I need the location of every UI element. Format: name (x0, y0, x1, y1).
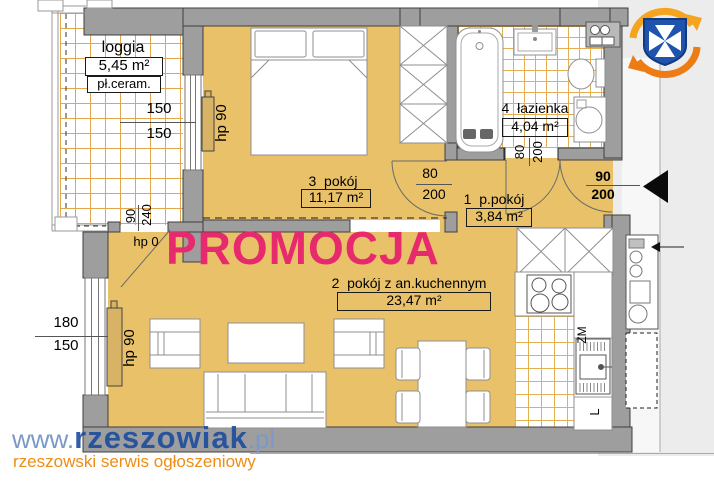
bathroom-label: 4 łazienka (492, 101, 578, 116)
loggia-label: loggia (85, 40, 161, 57)
site-logo-icon (628, 11, 702, 74)
watermark-tld: .pl (248, 424, 275, 454)
hall-area: 3,84 m² (466, 208, 532, 227)
room3-wardrobe (400, 26, 447, 143)
watermark-url: www.rzeszowiak.pl (12, 420, 275, 456)
room2-area: 23,47 m² (337, 292, 491, 311)
dim-entrance-door-height: 200 (585, 187, 621, 202)
dim-entrance-door-width: 90 (588, 169, 618, 184)
dim-balcony-door-hp: hp 0 (126, 235, 166, 249)
dim-loggia-window-bottom: 150 (141, 126, 177, 142)
dim-loggia-window-top: 150 (141, 101, 177, 117)
dim-room2-window-top: 180 (48, 315, 84, 331)
watermark-tagline: rzeszowski serwis ogłoszeniowy (13, 452, 256, 472)
coffee-table (228, 323, 304, 363)
top-edge-block-2 (87, 0, 112, 8)
watermark-prefix: www. (12, 424, 74, 454)
room3-area: 11,17 m² (301, 189, 371, 208)
toilet (568, 59, 605, 89)
loggia-area: 5,45 m² (85, 57, 163, 76)
stove (527, 275, 571, 313)
bed (251, 28, 367, 155)
dim-balcony-door-width: 90 (124, 203, 140, 229)
dim-balcony-door-height: 240 (140, 199, 156, 231)
washing-machine (574, 97, 606, 142)
loggia-floor-note: pł.ceram. (87, 76, 161, 93)
dim-bathroom-door-width: 80 (513, 138, 529, 166)
hall-wardrobe (517, 228, 613, 275)
loggia-pillar (55, 217, 77, 231)
armchair-right (334, 319, 384, 368)
dim-room2-window-bottom: 150 (48, 338, 84, 354)
kitchen-sink-label: ZM (576, 325, 592, 345)
armchair-left (150, 319, 200, 368)
dining-table (418, 341, 466, 427)
entrance-arrow-icon (643, 170, 668, 203)
room2-radiator-label: hp 90 (122, 318, 138, 378)
top-edge-block-1 (38, 0, 63, 11)
room3-label: 3 pokój (291, 174, 375, 189)
dim-bathroom-door-height: 200 (531, 135, 547, 169)
room2-radiator (107, 301, 122, 386)
utility-shaft (626, 235, 658, 329)
fridge-label: L (588, 405, 604, 419)
kitchen-sink (576, 339, 612, 394)
hall-label: 1 p.pokój (452, 192, 536, 207)
watermark-brand: rzeszowiak (74, 420, 248, 455)
bathtub (456, 28, 503, 152)
room2-label: 2 pokój z an.kuchennym (326, 276, 492, 291)
floor-plan: loggia 5,45 m² pł.ceram. 3 pokój 11,17 m… (0, 0, 714, 491)
bathroom-sink (514, 25, 556, 55)
dashed-duct (626, 333, 657, 408)
bathroom-shaft (586, 22, 620, 47)
promo-banner: PROMOCJA (166, 221, 440, 275)
dim-room3-door-height: 200 (416, 187, 452, 202)
room3-radiator-label: hp 90 (214, 96, 230, 150)
dim-room3-door-width: 80 (414, 166, 446, 181)
